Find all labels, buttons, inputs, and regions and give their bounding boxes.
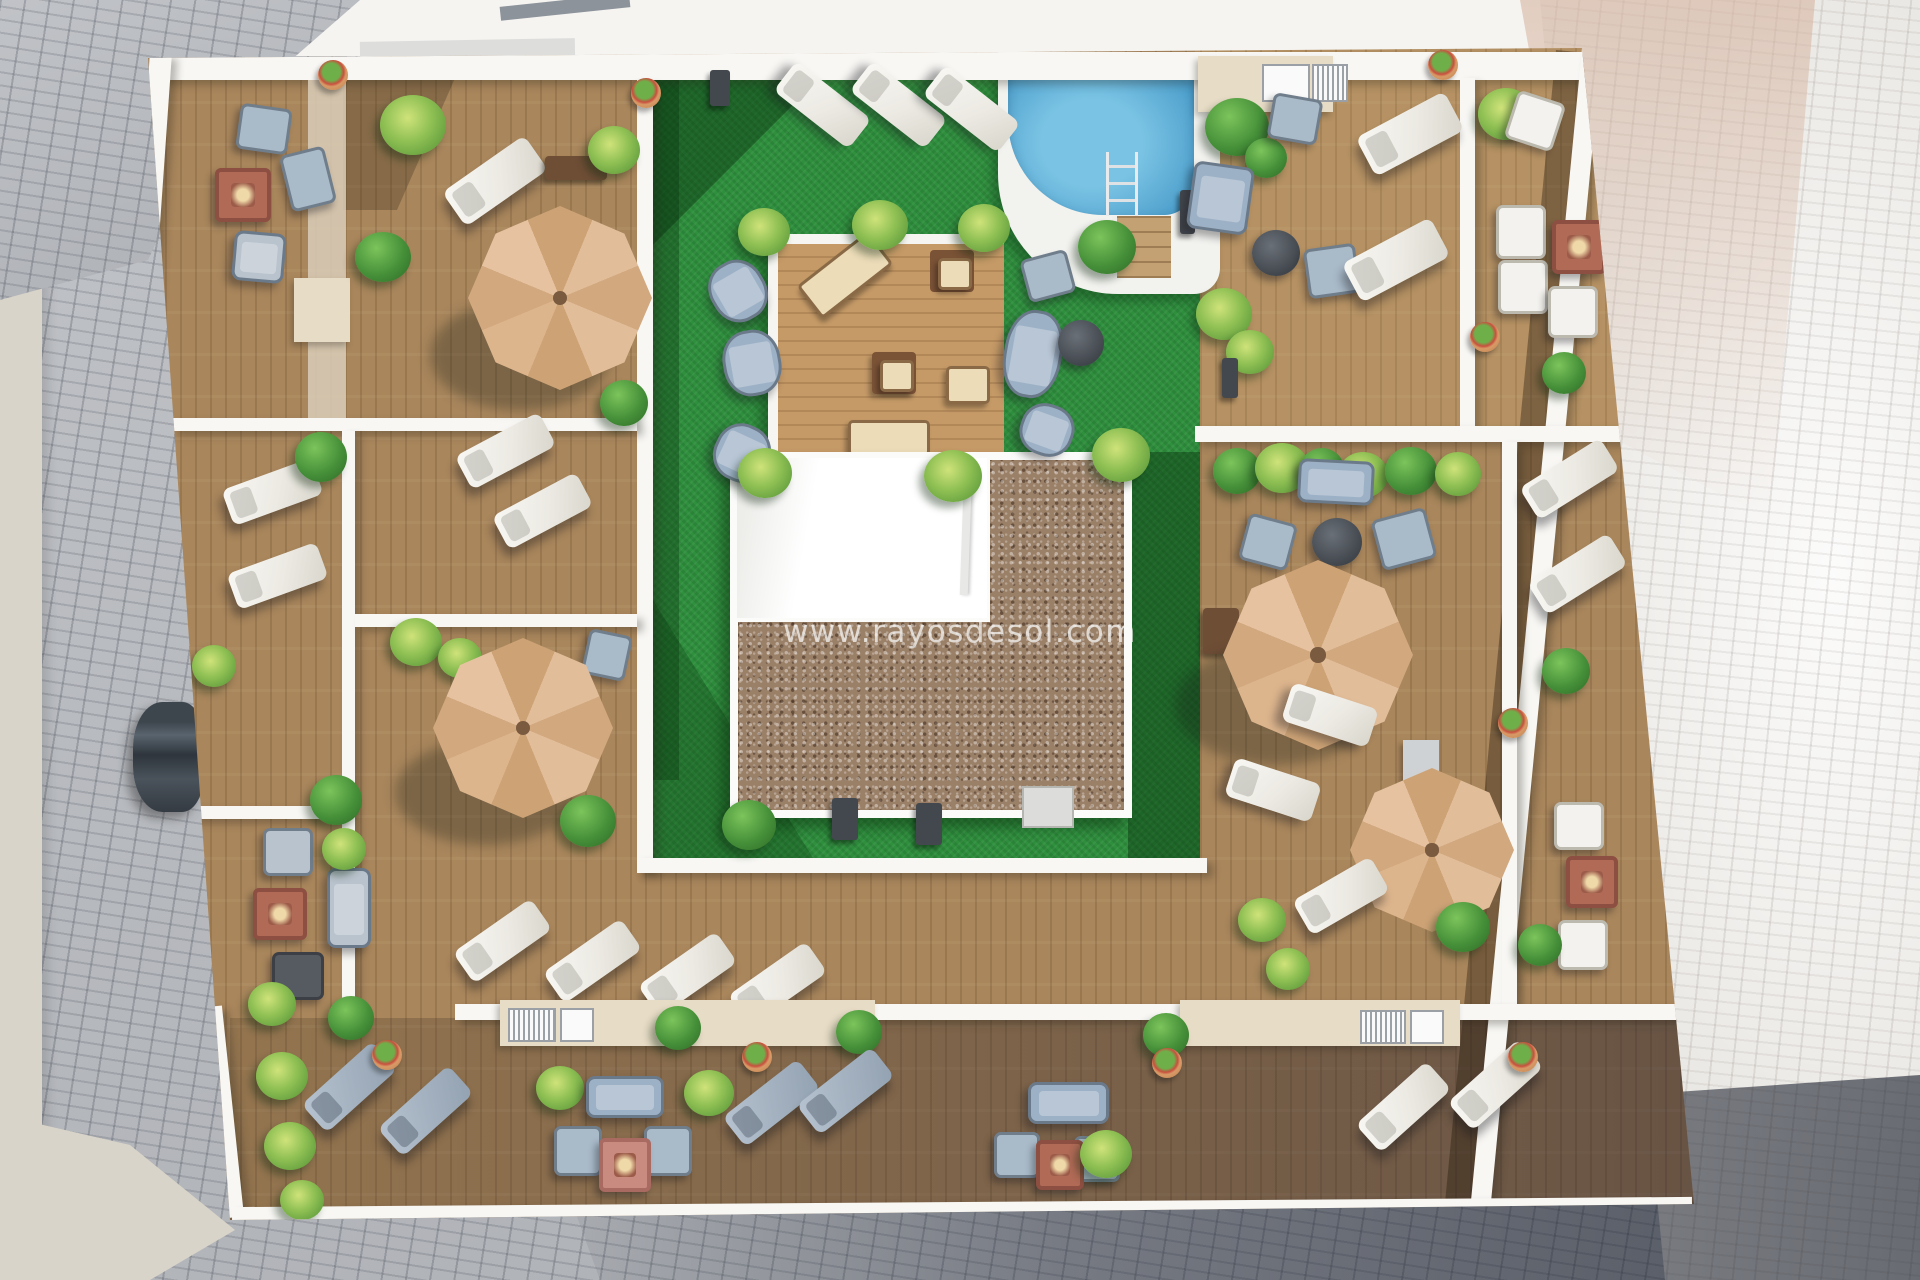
- bush: [1518, 924, 1562, 966]
- bush: [836, 1010, 882, 1054]
- parked-car: [133, 702, 203, 812]
- garden-light-post: [710, 70, 730, 106]
- palm-plant: [958, 204, 1010, 252]
- coffee-table: [1252, 230, 1300, 276]
- counter-appliance: [508, 1008, 556, 1042]
- palm-plant: [256, 1052, 308, 1100]
- planter-pot: [1498, 708, 1528, 738]
- palm-plant: [738, 448, 792, 498]
- planter-pot: [372, 1040, 402, 1070]
- armchair: [1266, 92, 1323, 146]
- divider-wall-topleft-horizontal: [172, 418, 637, 431]
- aerial-render-canvas: www.rayosdesol.com: [0, 0, 1920, 1280]
- bush: [1385, 447, 1437, 495]
- bush: [328, 996, 374, 1040]
- bush: [1436, 902, 1490, 952]
- fire-pit-table: [215, 168, 271, 222]
- divider-wall-topright-horizontal: [1195, 426, 1640, 442]
- palm-plant: [248, 982, 296, 1026]
- roof-core-utility-box: [1022, 786, 1074, 828]
- platform-table-top: [880, 360, 914, 392]
- palm-plant: [1092, 428, 1150, 482]
- outdoor-sofa: [1186, 160, 1256, 236]
- palm-plant: [684, 1070, 734, 1116]
- planter-pot: [1470, 322, 1500, 352]
- planter-pot: [1428, 50, 1458, 80]
- pool-ladder: [1106, 152, 1138, 216]
- armchair: [1558, 920, 1608, 970]
- parasol: [433, 638, 613, 818]
- outdoor-counter-topleft: [294, 278, 350, 342]
- palm-plant: [738, 208, 790, 256]
- divider-wall-turf-bottom: [637, 858, 1207, 873]
- palm-plant: [390, 618, 442, 666]
- fire-pit-table: [1552, 220, 1606, 274]
- planter-pot: [318, 60, 348, 90]
- armchair: [235, 103, 293, 156]
- palm-plant: [322, 828, 366, 870]
- palm-plant: [380, 95, 446, 155]
- bush: [310, 775, 362, 825]
- armchair: [644, 1126, 692, 1176]
- armchair: [1554, 802, 1604, 850]
- platform-bench: [848, 420, 930, 456]
- counter-appliance: [1410, 1010, 1444, 1044]
- counter-appliance: [1360, 1010, 1406, 1044]
- armchair: [1548, 286, 1598, 338]
- outdoor-sofa: [1028, 1082, 1109, 1124]
- armchair: [994, 1132, 1040, 1178]
- palm-plant: [280, 1180, 324, 1220]
- wall-grill: [916, 803, 942, 845]
- stone-path: [308, 80, 346, 418]
- watermark-text: www.rayosdesol.com: [660, 614, 1260, 650]
- bush: [655, 1006, 701, 1050]
- platform-seat-right: [946, 366, 990, 404]
- armchair: [263, 828, 313, 876]
- armchair: [1496, 205, 1546, 259]
- palm-plant: [588, 126, 640, 174]
- fire-pit-table: [1566, 856, 1618, 908]
- bush: [355, 232, 411, 282]
- fire-pit-table: [1036, 1140, 1084, 1190]
- bush: [600, 380, 648, 426]
- palm-plant: [536, 1066, 584, 1110]
- palm-plant: [852, 200, 908, 250]
- fire-bowl-table: [1312, 518, 1362, 566]
- platform-seat-cushion: [938, 258, 972, 290]
- bush: [560, 795, 616, 847]
- bush: [1213, 448, 1261, 494]
- outdoor-sofa: [327, 868, 371, 948]
- planter-pot: [742, 1042, 772, 1072]
- armchair: [554, 1126, 602, 1176]
- bush: [722, 800, 776, 850]
- palm-plant: [1080, 1130, 1132, 1178]
- planter-pot: [1508, 1042, 1538, 1072]
- outdoor-sofa: [1297, 458, 1375, 506]
- palm-plant: [192, 645, 236, 687]
- terrace-light-post: [1222, 358, 1238, 398]
- kitchen-grille: [1312, 64, 1348, 102]
- outdoor-sofa: [586, 1076, 664, 1118]
- palm-plant: [1266, 948, 1310, 990]
- planter-pot: [1152, 1048, 1182, 1078]
- palm-plant: [924, 450, 982, 502]
- bush: [1078, 220, 1136, 274]
- bush: [1542, 648, 1590, 694]
- palm-plant: [264, 1122, 316, 1170]
- planter-pot: [631, 78, 661, 108]
- bush: [1542, 352, 1586, 394]
- wall-grill: [832, 798, 858, 840]
- divider-wall-turf-left: [637, 80, 653, 872]
- fire-bowl-table: [1058, 320, 1104, 366]
- counter-appliance: [560, 1008, 594, 1042]
- fire-pit-table: [253, 888, 307, 940]
- outdoor-sofa: [231, 230, 287, 284]
- palm-plant: [1238, 898, 1286, 942]
- bush: [295, 432, 347, 482]
- palm-plant: [1435, 452, 1481, 496]
- armchair: [1498, 260, 1548, 314]
- fire-pit-table: [599, 1138, 651, 1192]
- divider-wall-topright-vertical: [1460, 78, 1475, 428]
